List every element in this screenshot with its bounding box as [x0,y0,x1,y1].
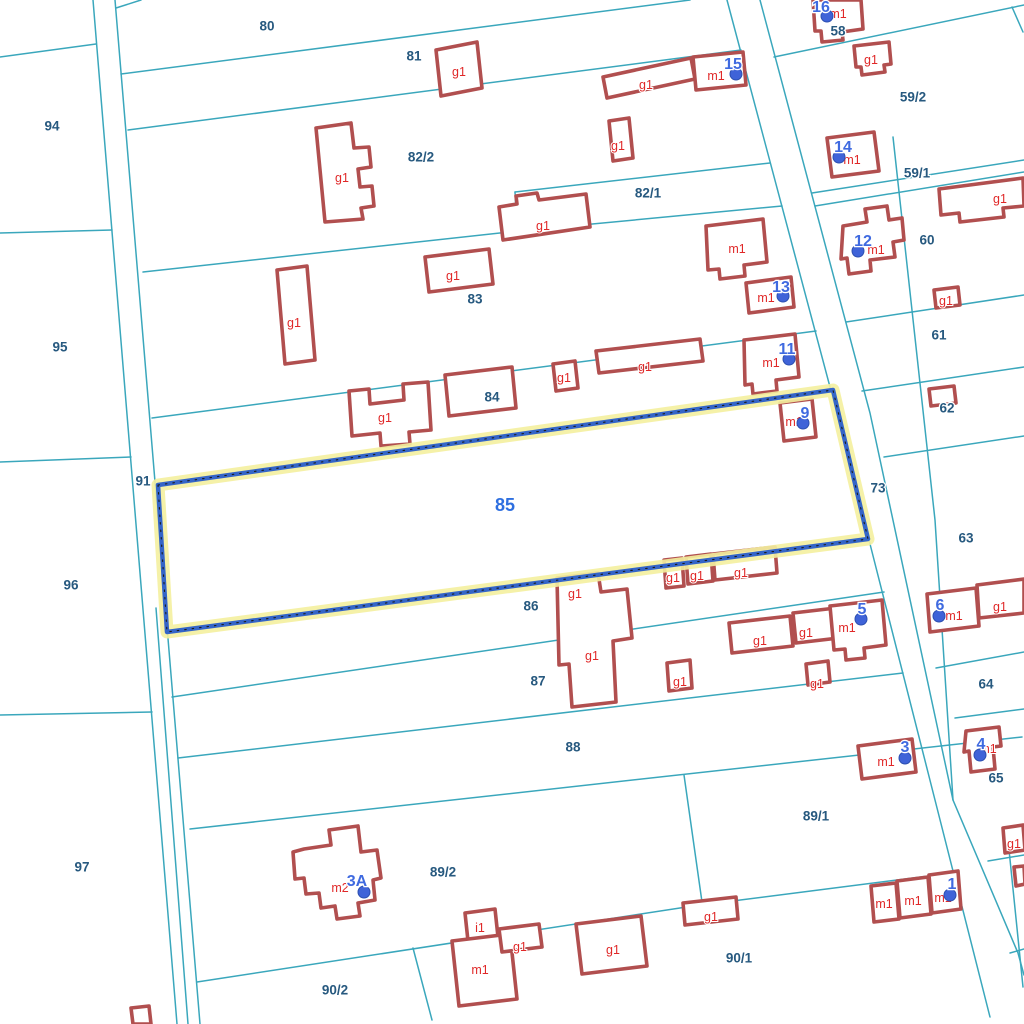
building-label: m1 [875,897,892,911]
parcel-label-97[interactable]: 97 [74,860,89,875]
parcel-label-89-2[interactable]: 89/2 [430,865,456,880]
parcel-boundary-line [936,652,1024,668]
building-label: g1 [606,943,620,957]
building-label: g1 [799,626,813,640]
parcel-label-91[interactable]: 91 [135,474,151,489]
parcel-label-59-2[interactable]: 59/2 [900,90,926,105]
address-marker-3[interactable]: 3 [899,739,911,764]
address-marker-number: 12 [854,233,872,250]
address-marker-number: 16 [812,0,830,16]
cadastral-map-canvas[interactable]: g1g1g1m1g1g1m1m1g1g1g1g1g1m1m1g1g1g1g1g1… [0,0,1024,1024]
parcel-boundary-line [413,948,432,1020]
address-marker-number: 5 [858,601,867,618]
building-label: g1 [287,316,301,330]
parcel-label-96[interactable]: 96 [63,578,79,593]
building-label: m1 [728,242,745,256]
parcel-label-82-1[interactable]: 82/1 [635,186,662,201]
selected-parcel-label[interactable]: 85 [495,495,515,515]
building-label: m1 [762,356,779,370]
building-label: g1 [536,219,550,233]
building-label: m1 [471,963,488,977]
parcel-label-83[interactable]: 83 [467,292,483,307]
parcel-boundary-line [0,457,131,462]
building-label: g1 [335,171,349,185]
parcel-boundary-line [0,712,152,715]
parcel-label-73[interactable]: 73 [870,481,886,496]
address-marker-number: 3A [347,873,368,890]
building-label: g1 [810,677,824,691]
address-marker-number: 6 [936,597,945,614]
parcel-boundary-line [0,230,112,233]
parcel-boundary-line [988,855,1024,861]
building-label: g1 [639,78,653,92]
parcel-label-90-2[interactable]: 90/2 [322,983,348,998]
parcel-boundary-line [760,0,1024,975]
building-outline [131,1006,151,1024]
building-label: g1 [704,910,718,924]
building-label: g1 [993,192,1007,206]
parcel-label-64[interactable]: 64 [978,677,994,692]
building-outline [277,266,315,364]
parcel-label-81[interactable]: 81 [406,49,422,64]
building-label: g1 [378,411,392,425]
building-label: g1 [673,675,687,689]
parcel-label-86[interactable]: 86 [523,599,539,614]
address-marker-number: 11 [779,341,796,358]
building-outline [1014,866,1024,886]
building-label: g1 [452,65,466,79]
parcel-boundary-line [1012,7,1023,32]
building-label: g1 [666,571,680,585]
address-marker-number: 9 [801,405,810,422]
parcel-boundary-line [955,709,1024,718]
parcel-boundary-line [0,44,96,57]
parcel-label-59-1[interactable]: 59/1 [904,166,931,181]
building-label: m1 [838,621,855,635]
address-marker-6[interactable]: 6 [933,597,945,622]
parcel-boundary-line [884,436,1024,457]
address-marker-5[interactable]: 5 [855,601,867,625]
building-label: g1 [568,587,582,601]
building-label: g1 [585,649,599,663]
parcel-label-61[interactable]: 61 [931,328,947,343]
building-label: g1 [993,600,1007,614]
building-outline [293,826,381,919]
address-marker-number: 14 [834,139,852,156]
address-marker-number: 13 [772,279,790,296]
parcel-label-80[interactable]: 80 [259,19,274,34]
building-label: g1 [734,566,748,580]
parcel-label-88[interactable]: 88 [565,740,581,755]
building-label: g1 [513,940,527,954]
building-label: g1 [557,371,571,385]
parcel-label-60[interactable]: 60 [919,233,934,248]
map-svg: g1g1g1m1g1g1m1m1g1g1g1g1g1m1m1g1g1g1g1g1… [0,0,1024,1024]
parcel-label-62[interactable]: 62 [939,401,954,416]
building-outline [445,367,516,416]
parcel-label-90-1[interactable]: 90/1 [726,951,753,966]
building-label: g1 [753,634,767,648]
building-label: m1 [945,609,962,623]
building-label: g1 [864,53,878,67]
parcel-label-95[interactable]: 95 [52,340,68,355]
building-label: g1 [611,139,625,153]
parcel-boundary-line [684,775,702,902]
parcel-label-82-2[interactable]: 82/2 [408,150,434,165]
building-label: g1 [1007,837,1021,851]
building-label: m1 [707,69,724,83]
building-label: g1 [690,569,704,583]
building-label: g1 [638,360,652,374]
address-marker-number: 1 [948,876,957,893]
address-marker-number: 15 [724,56,742,73]
address-marker-number: 4 [977,736,986,753]
building-label: g1 [446,269,460,283]
building-label: m1 [904,894,921,908]
building-label: g1 [939,294,953,308]
building-outline [841,206,904,274]
parcel-label-58[interactable]: 58 [830,24,846,39]
parcel-label-94[interactable]: 94 [44,119,60,134]
parcel-label-89-1[interactable]: 89/1 [803,809,830,824]
parcel-label-63[interactable]: 63 [958,531,974,546]
parcel-label-84[interactable]: 84 [484,390,500,405]
parcel-label-87[interactable]: 87 [530,674,545,689]
building-label: m1 [877,755,894,769]
parcel-boundary-line [116,0,141,8]
building-outline [939,178,1024,222]
parcel-label-65[interactable]: 65 [988,771,1004,786]
building-label: i1 [475,921,485,935]
address-marker-number: 3 [901,739,910,756]
address-marker-4[interactable]: 4 [974,736,986,761]
